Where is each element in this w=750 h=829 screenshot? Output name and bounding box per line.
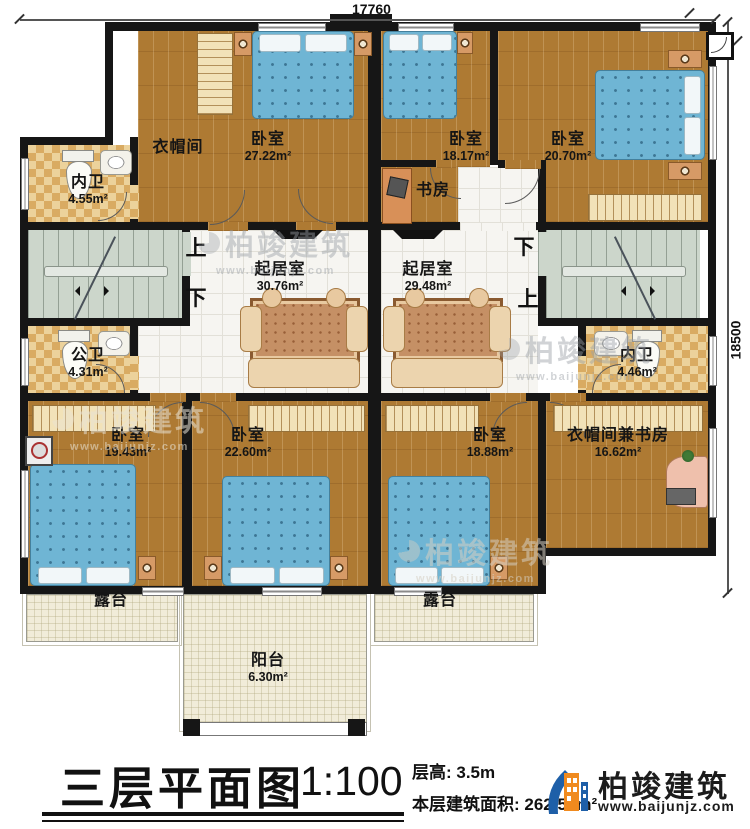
room-name: 起居室 <box>254 261 305 279</box>
brand-logo-icon <box>543 764 593 822</box>
wall <box>381 393 716 401</box>
armchair <box>346 306 368 352</box>
window <box>21 158 29 210</box>
wall <box>105 22 113 145</box>
stair-break-line <box>614 236 656 320</box>
room-label-bedroom-tl: 卧室 27.22m² <box>245 131 292 163</box>
wall <box>538 548 716 556</box>
room-area: 6.30m² <box>248 670 288 684</box>
nightstand <box>234 32 252 56</box>
window <box>709 428 717 518</box>
room-label-living-right: 起居室 29.48m² <box>402 261 453 293</box>
room-name: 衣帽间 <box>152 139 203 157</box>
stair-direction-arrow <box>70 286 80 296</box>
sofa-set-right <box>383 288 509 390</box>
room-area: 19.43m² <box>105 445 152 459</box>
nightstand <box>668 50 702 68</box>
window <box>709 336 717 386</box>
staircase-right <box>546 230 700 318</box>
door-gap <box>130 185 139 219</box>
room-label-bedroom-tr: 卧室 20.70m² <box>545 131 592 163</box>
room-label-bedroom-bm1: 卧室 22.60m² <box>225 427 272 459</box>
brand-logo-svg <box>543 764 593 822</box>
room-area: 27.22m² <box>245 149 292 163</box>
window <box>640 23 700 32</box>
pillow <box>684 76 701 114</box>
door-gap <box>200 393 236 402</box>
bed <box>595 70 705 160</box>
pillow <box>279 567 324 584</box>
sink <box>100 150 132 175</box>
room-label-bedroom-bl: 卧室 19.43m² <box>105 427 152 459</box>
pillow <box>259 34 301 52</box>
room-name: 衣帽间兼书房 <box>567 427 669 445</box>
wall <box>381 160 436 167</box>
stool <box>469 288 489 308</box>
room-label-living-left: 起居室 30.76m² <box>254 261 305 293</box>
wardrobe <box>197 33 233 115</box>
stair-direction-arrow <box>104 286 114 296</box>
window <box>21 470 29 558</box>
dimension-line-right <box>727 22 729 594</box>
stair-direction-arrow <box>650 286 660 296</box>
sofa <box>248 358 360 388</box>
title-underline-thin <box>42 820 404 822</box>
nightstand <box>354 32 372 56</box>
washer <box>25 436 53 466</box>
door-gap <box>550 393 586 402</box>
room-area: 4.55m² <box>68 192 108 206</box>
floor-height: 层高: 3.5m <box>412 758 495 783</box>
nightstand <box>138 556 156 580</box>
party-wall <box>368 22 381 594</box>
stair-up-label: 上 <box>518 283 539 313</box>
wall <box>20 393 368 401</box>
corner-arc <box>711 37 727 53</box>
stair-direction-arrow <box>616 286 626 296</box>
room-name: 起居室 <box>402 261 453 279</box>
stair-down-label: 下 <box>186 282 207 312</box>
room-label-bath-mr: 内卫 4.46m² <box>617 347 657 379</box>
dimension-top: 17760 <box>352 1 391 17</box>
room-name: 露台 <box>423 592 457 610</box>
door-gap <box>150 393 186 402</box>
balcony-column <box>348 719 365 736</box>
room-label-closet-tl: 衣帽间 <box>152 139 203 157</box>
monitor <box>666 488 696 505</box>
room-area: 18.17m² <box>443 149 490 163</box>
armchair <box>240 306 262 352</box>
room-name: 露台 <box>94 592 128 610</box>
room-name: 内卫 <box>617 347 657 365</box>
room-area: 4.46m² <box>617 365 657 379</box>
wardrobe <box>588 194 702 221</box>
room-area: 20.70m² <box>545 149 592 163</box>
room-name: 阳台 <box>248 652 288 670</box>
window <box>709 66 717 160</box>
pillow <box>395 567 438 584</box>
room-name: 卧室 <box>245 131 292 149</box>
bed <box>252 31 354 119</box>
bed <box>222 476 330 586</box>
bed <box>383 31 457 119</box>
wall <box>538 401 546 594</box>
room-name: 卧室 <box>545 131 592 149</box>
dimension-line-top <box>20 19 716 21</box>
stair-up-label: 上 <box>186 232 207 262</box>
nightstand <box>490 556 508 580</box>
pillow <box>305 34 347 52</box>
pillow <box>441 567 484 584</box>
room-area: 30.76m² <box>254 279 305 293</box>
balcony-parapet <box>183 722 367 736</box>
wall <box>538 318 716 326</box>
wall <box>20 137 113 145</box>
monitor <box>386 176 409 199</box>
pillow <box>38 567 82 584</box>
wall <box>490 22 498 165</box>
plan-scale: 1:100 <box>300 758 403 805</box>
room-name: 书房 <box>416 182 450 200</box>
balcony-column <box>183 719 200 736</box>
pillow <box>422 34 452 51</box>
room-area: 4.31m² <box>68 365 108 379</box>
room-label-closet-br: 衣帽间兼书房 16.62m² <box>567 427 669 459</box>
corner-detail-symbol <box>706 32 734 60</box>
title-underline <box>42 812 404 816</box>
door-gap <box>460 222 536 231</box>
room-label-balcony: 阳台 6.30m² <box>248 652 288 684</box>
wall <box>20 586 376 594</box>
room-label-study: 书房 <box>416 182 450 200</box>
window <box>21 338 29 386</box>
room-name: 公卫 <box>68 347 108 365</box>
brand-website: www.baijunjz.com <box>598 798 735 814</box>
wall <box>20 318 190 326</box>
room-label-bedroom-bm2: 卧室 18.88m² <box>467 427 514 459</box>
terrace-door <box>142 587 184 596</box>
nightstand <box>330 556 348 580</box>
wall <box>381 222 716 230</box>
nightstand <box>457 32 473 54</box>
room-label-terrace-right: 露台 <box>423 592 457 610</box>
room-area: 16.62m² <box>567 445 669 459</box>
corner-tick <box>684 8 695 19</box>
room-area: 22.60m² <box>225 445 272 459</box>
pillow <box>86 567 130 584</box>
door-gap <box>130 356 139 390</box>
rug <box>393 298 503 362</box>
door-gap <box>490 393 526 402</box>
sofa <box>391 358 503 388</box>
room-label-terrace-left: 露台 <box>94 592 128 610</box>
armchair <box>383 306 405 352</box>
room-name: 内卫 <box>68 174 108 192</box>
room-name: 卧室 <box>225 427 272 445</box>
stair-break-line <box>74 236 116 320</box>
staircase-left <box>28 230 182 318</box>
bed <box>30 464 136 586</box>
sofa-set-left <box>240 288 366 390</box>
door-gap <box>578 356 587 390</box>
plan-title: 三层平面图 <box>60 752 305 817</box>
stair-rail <box>562 266 686 277</box>
plant <box>682 450 694 462</box>
room-label-bath-tl: 内卫 4.55m² <box>68 174 108 206</box>
nightstand <box>204 556 222 580</box>
nightstand <box>668 162 702 180</box>
pillow <box>230 567 275 584</box>
washer-door <box>31 442 48 459</box>
room-label-bedroom-tm: 卧室 18.17m² <box>443 131 490 163</box>
wall <box>182 401 192 594</box>
pillow <box>389 34 419 51</box>
stair-entry-gap <box>538 232 547 276</box>
rug <box>250 298 360 362</box>
floor-plan-canvas: 17760 18500 <box>0 0 750 829</box>
room-label-bath-ml: 公卫 4.31m² <box>68 347 108 379</box>
room-name: 卧室 <box>443 131 490 149</box>
bed <box>388 476 490 586</box>
room-name: 卧室 <box>105 427 152 445</box>
stair-down-label: 下 <box>514 231 535 261</box>
balcony-slider-door <box>262 587 322 596</box>
armchair <box>489 306 511 352</box>
door-gap <box>505 160 541 169</box>
stool <box>326 288 346 308</box>
wardrobe <box>385 405 479 432</box>
room-area: 29.48m² <box>402 279 453 293</box>
room-name: 卧室 <box>467 427 514 445</box>
pillow <box>684 117 701 155</box>
room-area: 18.88m² <box>467 445 514 459</box>
dimension-right: 18500 <box>727 321 743 360</box>
stair-rail <box>44 266 168 277</box>
